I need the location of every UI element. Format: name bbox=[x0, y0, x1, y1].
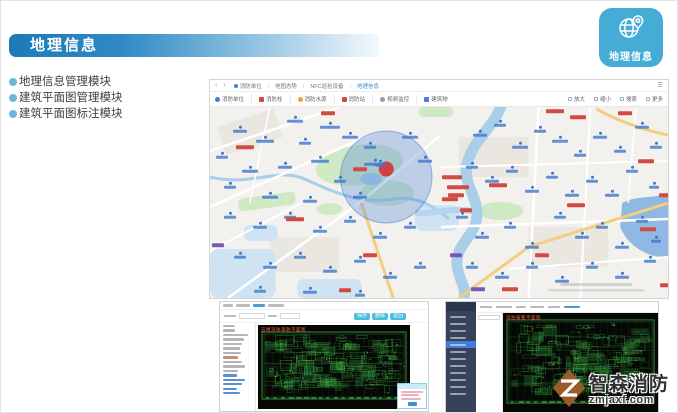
sidebar-item[interactable] bbox=[446, 334, 476, 341]
toolbar-divider bbox=[251, 95, 252, 103]
water-source-icon bbox=[298, 97, 303, 102]
tree-item[interactable] bbox=[223, 388, 237, 390]
map-poi-marker[interactable] bbox=[294, 252, 306, 259]
popup-text-line bbox=[401, 398, 421, 400]
map-poi-marker[interactable] bbox=[364, 159, 386, 166]
map-poi-marker[interactable] bbox=[442, 175, 462, 179]
tree-item[interactable] bbox=[223, 379, 245, 381]
layer-toggle-group: 消防单位消防栓消防水源消防站视频监控建筑物 bbox=[215, 95, 448, 103]
map-poi-marker[interactable] bbox=[574, 150, 586, 157]
user-icon bbox=[215, 97, 220, 102]
map-poi-marker[interactable] bbox=[570, 115, 586, 119]
map-poi-marker[interactable] bbox=[526, 262, 538, 269]
cad1-drawing-area[interactable]: 五楼消防疏散平面图 bbox=[258, 325, 410, 409]
toolbar-item[interactable] bbox=[530, 306, 544, 308]
map-poi-marker[interactable] bbox=[485, 176, 499, 183]
map-poi-marker[interactable] bbox=[506, 166, 518, 173]
drawing-title: 消防报警平面图 bbox=[506, 315, 541, 321]
geo-info-app-tile: 地理信息 bbox=[599, 8, 663, 67]
cad2-top-bar bbox=[476, 302, 658, 313]
toolbar-divider bbox=[334, 95, 335, 103]
layer-toggle-1[interactable]: 消防单位 bbox=[215, 95, 244, 103]
map-poi-marker[interactable] bbox=[659, 193, 668, 197]
watermark-logo-icon bbox=[552, 368, 586, 413]
cad1-body: 五楼消防疏散平面图 bbox=[220, 323, 428, 411]
map-poi-marker[interactable] bbox=[651, 236, 661, 243]
tree-item[interactable] bbox=[223, 374, 237, 376]
map-poi-marker[interactable] bbox=[475, 232, 489, 239]
map-poi-marker[interactable] bbox=[263, 262, 277, 269]
map-poi-marker[interactable] bbox=[236, 145, 254, 149]
sidebar-item[interactable] bbox=[446, 341, 476, 348]
tree-item[interactable] bbox=[223, 347, 240, 349]
map-poi-marker[interactable] bbox=[593, 132, 607, 139]
map-poi-marker[interactable] bbox=[512, 142, 528, 149]
breadcrumb-separator: | bbox=[268, 83, 269, 89]
map-poi-marker[interactable] bbox=[442, 197, 458, 201]
cad1-action-button-2[interactable]: 删除 bbox=[372, 313, 388, 320]
breadcrumb-item[interactable]: 地理信息 bbox=[355, 82, 381, 90]
tree-item[interactable] bbox=[223, 392, 240, 394]
tab-item[interactable] bbox=[253, 304, 265, 307]
map-poi-marker[interactable] bbox=[466, 262, 478, 269]
map-poi-marker[interactable] bbox=[383, 272, 397, 279]
breadcrumb-item[interactable]: 地图态势 bbox=[273, 82, 299, 90]
tree-item[interactable] bbox=[223, 334, 248, 336]
map-poi-marker[interactable] bbox=[344, 216, 356, 223]
menu-icon[interactable]: ☰ bbox=[658, 82, 663, 89]
map-poi-marker[interactable] bbox=[649, 182, 659, 189]
sidebar-item[interactable] bbox=[446, 369, 476, 376]
zoom-in-icon bbox=[568, 97, 572, 101]
brochure-slide: 地理信息 地理信息 地理信息管理模块 建筑平面图管理模块 建筑平面图标注模块 ‹… bbox=[0, 0, 678, 413]
map-poi-marker[interactable] bbox=[495, 272, 509, 279]
map-poi-marker[interactable] bbox=[650, 142, 662, 149]
map-poi-marker[interactable] bbox=[494, 120, 506, 127]
map-poi-marker[interactable] bbox=[636, 216, 648, 223]
toolbar-divider bbox=[372, 95, 373, 103]
map-poi-marker[interactable] bbox=[233, 126, 247, 133]
tree-item[interactable] bbox=[223, 356, 238, 358]
tree-item[interactable] bbox=[223, 352, 241, 354]
floorplan-tree[interactable] bbox=[220, 323, 256, 411]
map-poi-marker[interactable] bbox=[546, 109, 564, 113]
map-poi-marker[interactable] bbox=[635, 122, 649, 129]
bullet-item: 建筑平面图标注模块 bbox=[9, 106, 123, 122]
map-poi-marker[interactable] bbox=[644, 256, 656, 263]
tree-item[interactable] bbox=[223, 383, 242, 385]
map-poi-marker[interactable] bbox=[334, 176, 346, 183]
map-poi-marker[interactable] bbox=[224, 212, 236, 219]
map-poi-marker[interactable] bbox=[575, 232, 589, 239]
map-poi-marker[interactable] bbox=[320, 122, 340, 129]
map-poi-marker[interactable] bbox=[471, 287, 485, 291]
map-poi-marker[interactable] bbox=[605, 190, 619, 197]
breadcrumb-item[interactable]: NFC巡检设备 bbox=[308, 82, 345, 90]
sidebar-item[interactable] bbox=[446, 362, 476, 369]
map-poi-marker[interactable] bbox=[404, 222, 416, 229]
map-poi-marker[interactable] bbox=[489, 183, 507, 187]
map-layer-toolbar: 消防单位消防栓消防水源消防站视频监控建筑物 放大缩小搜索更多 bbox=[210, 92, 668, 107]
sidebar-item[interactable] bbox=[446, 355, 476, 362]
watermark-brand: 智森消防 bbox=[589, 375, 669, 394]
search-icon bbox=[620, 97, 624, 101]
hydrant-icon bbox=[259, 97, 264, 102]
cad1-button-group: 保存删除返回 bbox=[354, 313, 406, 320]
field-label bbox=[224, 315, 236, 318]
layer-toggle-6[interactable]: 建筑物 bbox=[424, 95, 448, 103]
map-poi-marker[interactable] bbox=[615, 272, 629, 279]
map-poi-marker[interactable] bbox=[565, 190, 579, 197]
map-poi-marker[interactable] bbox=[626, 166, 638, 173]
map-poi-marker[interactable] bbox=[546, 172, 558, 179]
drawing-title: 五楼消防疏散平面图 bbox=[261, 327, 306, 333]
forward-arrow-icon[interactable]: › bbox=[223, 81, 225, 91]
view-control[interactable]: 搜索 bbox=[620, 95, 637, 103]
cad1-tab-bar bbox=[220, 302, 428, 310]
camera-icon bbox=[380, 97, 385, 102]
watermark-site: zmjaxf.com bbox=[589, 395, 669, 406]
toolbar-item[interactable] bbox=[564, 306, 580, 308]
map-poi-marker[interactable] bbox=[286, 217, 304, 221]
breadcrumb-separator: | bbox=[350, 83, 351, 89]
app-tile-label: 地理信息 bbox=[609, 48, 653, 63]
map-poi-marker[interactable] bbox=[614, 146, 626, 153]
map-poi-marker[interactable] bbox=[353, 167, 367, 171]
view-control[interactable]: 更多 bbox=[646, 95, 663, 103]
map-poi-marker[interactable] bbox=[525, 186, 539, 193]
floorplan-canvas[interactable] bbox=[258, 325, 410, 409]
sidebar-header bbox=[446, 302, 476, 311]
map-poi-marker[interactable] bbox=[299, 138, 311, 145]
sidebar-item[interactable] bbox=[446, 348, 476, 355]
map-poi-marker[interactable] bbox=[242, 166, 258, 173]
map-poi-marker[interactable] bbox=[321, 111, 335, 115]
map-poi-marker[interactable] bbox=[615, 242, 629, 249]
sidebar-item[interactable] bbox=[446, 390, 476, 397]
toolbar-divider bbox=[416, 95, 417, 103]
map-poi-marker[interactable] bbox=[287, 116, 303, 123]
globe-pin-icon bbox=[617, 13, 645, 46]
field-label bbox=[268, 315, 277, 318]
map-poi-marker[interactable] bbox=[234, 252, 246, 259]
map-poi-marker[interactable] bbox=[552, 136, 568, 143]
type-input[interactable] bbox=[280, 313, 300, 319]
module-bullet-list: 地理信息管理模块 建筑平面图管理模块 建筑平面图标注模块 bbox=[9, 74, 123, 122]
map-poi-marker[interactable] bbox=[303, 196, 317, 203]
sidebar-item[interactable] bbox=[446, 376, 476, 383]
sidebar-item[interactable] bbox=[446, 327, 476, 334]
map-poi-marker[interactable] bbox=[466, 162, 478, 169]
map-poi-marker[interactable] bbox=[586, 262, 598, 269]
tab-item[interactable] bbox=[268, 304, 284, 307]
map-poi-marker[interactable] bbox=[554, 212, 566, 219]
popup-text-line bbox=[401, 391, 423, 393]
map-poi-marker[interactable] bbox=[534, 126, 546, 133]
map-canvas[interactable] bbox=[210, 107, 668, 298]
map-poi-marker[interactable] bbox=[256, 136, 274, 143]
cad1-toolbar: 保存删除返回 bbox=[220, 310, 428, 323]
dark-sidebar[interactable] bbox=[446, 302, 476, 413]
toolbar-divider bbox=[290, 95, 291, 103]
layer-toggle-3[interactable]: 消防水源 bbox=[298, 95, 327, 103]
map-nav-bar: ‹ › 消防单位|地图态势|NFC巡检设备|地理信息 ☰ bbox=[210, 80, 668, 92]
view-control[interactable]: 缩小 bbox=[594, 95, 611, 103]
map-poi-marker[interactable] bbox=[364, 142, 376, 149]
toolbar-item[interactable] bbox=[480, 306, 492, 308]
tree-item[interactable] bbox=[223, 329, 235, 331]
map-poi-marker[interactable] bbox=[447, 185, 469, 189]
map-poi-marker[interactable] bbox=[473, 130, 487, 137]
map-poi-marker[interactable] bbox=[660, 283, 668, 287]
map-poi-marker[interactable] bbox=[567, 203, 585, 207]
zoom-out-icon bbox=[594, 97, 598, 101]
layer-toggle-2[interactable]: 消防栓 bbox=[259, 95, 283, 103]
cad1-action-button-1[interactable]: 保存 bbox=[354, 313, 370, 320]
user-icon bbox=[234, 84, 238, 88]
map-poi-marker[interactable] bbox=[253, 222, 267, 229]
floorplan-tree[interactable] bbox=[476, 313, 503, 413]
back-arrow-icon[interactable]: ‹ bbox=[215, 81, 217, 91]
fire-station-icon bbox=[342, 97, 347, 102]
map-poi-marker[interactable] bbox=[555, 276, 569, 283]
breadcrumb: 消防单位|地图态势|NFC巡检设备|地理信息 bbox=[232, 82, 381, 90]
sidebar-item[interactable] bbox=[446, 383, 476, 390]
poi-marker-layer bbox=[210, 107, 668, 298]
tree-item[interactable] bbox=[223, 343, 242, 345]
popup-header bbox=[398, 384, 426, 389]
map-poi-marker[interactable] bbox=[402, 132, 418, 139]
more-icon bbox=[646, 97, 650, 101]
bullet-icon bbox=[9, 78, 17, 86]
map-poi-marker[interactable] bbox=[504, 222, 516, 229]
map-poi-marker[interactable] bbox=[342, 132, 358, 139]
map-app-window: ‹ › 消防单位|地图态势|NFC巡检设备|地理信息 ☰ 消防单位消防栓消防水源… bbox=[209, 79, 669, 299]
map-poi-marker[interactable] bbox=[525, 242, 539, 249]
page-title: 地理信息 bbox=[9, 34, 379, 57]
floorplan-app-window-1: 保存删除返回 五楼消防疏散平面图 bbox=[219, 301, 429, 412]
bullet-icon bbox=[9, 110, 17, 118]
bullet-item: 建筑平面图管理模块 bbox=[9, 90, 123, 106]
sidebar-item[interactable] bbox=[446, 320, 476, 327]
view-control[interactable]: 放大 bbox=[568, 95, 585, 103]
map-poi-marker[interactable] bbox=[618, 111, 632, 115]
toolbar-item[interactable] bbox=[548, 306, 560, 308]
building-icon bbox=[424, 97, 429, 102]
tree-item[interactable] bbox=[223, 338, 244, 340]
layer-toggle-5[interactable]: 视频监控 bbox=[380, 95, 409, 103]
breadcrumb-item[interactable]: 消防单位 bbox=[232, 82, 264, 90]
map-poi-marker[interactable] bbox=[535, 253, 549, 257]
map-poi-marker[interactable] bbox=[216, 152, 228, 159]
toolbar-item[interactable] bbox=[496, 306, 512, 308]
map-poi-marker[interactable] bbox=[254, 286, 266, 293]
map-poi-marker[interactable] bbox=[640, 227, 656, 231]
map-poi-marker[interactable] bbox=[414, 262, 426, 269]
tree-item[interactable] bbox=[223, 370, 238, 372]
map-poi-marker[interactable] bbox=[353, 192, 367, 199]
map-poi-marker[interactable] bbox=[278, 162, 292, 169]
map-poi-marker[interactable] bbox=[586, 176, 598, 183]
map-poi-marker[interactable] bbox=[262, 192, 278, 199]
tree-item[interactable] bbox=[223, 365, 245, 367]
map-poi-marker[interactable] bbox=[448, 193, 464, 197]
map-poi-marker[interactable] bbox=[339, 288, 351, 292]
map-view-controls: 放大缩小搜索更多 bbox=[568, 95, 663, 103]
tree-item[interactable] bbox=[223, 361, 242, 363]
map-poi-marker[interactable] bbox=[323, 266, 337, 273]
info-popup bbox=[397, 383, 427, 409]
tab-item[interactable] bbox=[236, 304, 250, 307]
bullet-icon bbox=[9, 94, 17, 102]
popup-confirm-button[interactable] bbox=[408, 402, 417, 406]
map-poi-marker[interactable] bbox=[311, 156, 329, 163]
map-poi-marker[interactable] bbox=[212, 243, 224, 247]
map-poi-marker[interactable] bbox=[450, 253, 462, 257]
map-poi-marker[interactable] bbox=[418, 156, 432, 163]
map-poi-marker[interactable] bbox=[596, 222, 608, 229]
map-poi-marker[interactable] bbox=[355, 290, 365, 297]
map-poi-marker[interactable] bbox=[303, 287, 317, 294]
breadcrumb-separator: | bbox=[303, 83, 304, 89]
map-poi-marker[interactable] bbox=[638, 159, 654, 163]
sidebar-item[interactable] bbox=[446, 313, 476, 320]
cad1-action-button-3[interactable]: 返回 bbox=[390, 313, 406, 320]
popup-text-line bbox=[401, 394, 419, 396]
map-poi-marker[interactable] bbox=[224, 182, 236, 189]
bullet-item: 地理信息管理模块 bbox=[9, 74, 123, 90]
map-poi-marker[interactable] bbox=[460, 208, 472, 212]
watermark: 智森消防 zmjaxf.com bbox=[552, 366, 678, 413]
map-poi-marker[interactable] bbox=[456, 212, 468, 219]
map-poi-marker[interactable] bbox=[373, 232, 387, 239]
map-poi-marker[interactable] bbox=[363, 253, 377, 257]
tree-search-input[interactable] bbox=[478, 315, 500, 320]
map-poi-marker[interactable] bbox=[502, 287, 518, 291]
tab-item[interactable] bbox=[223, 304, 233, 307]
layer-toggle-4[interactable]: 消防站 bbox=[342, 95, 366, 103]
toolbar-item[interactable] bbox=[516, 306, 526, 308]
name-input[interactable] bbox=[239, 313, 265, 319]
map-poi-marker[interactable] bbox=[313, 226, 327, 233]
tree-item[interactable] bbox=[223, 325, 235, 327]
